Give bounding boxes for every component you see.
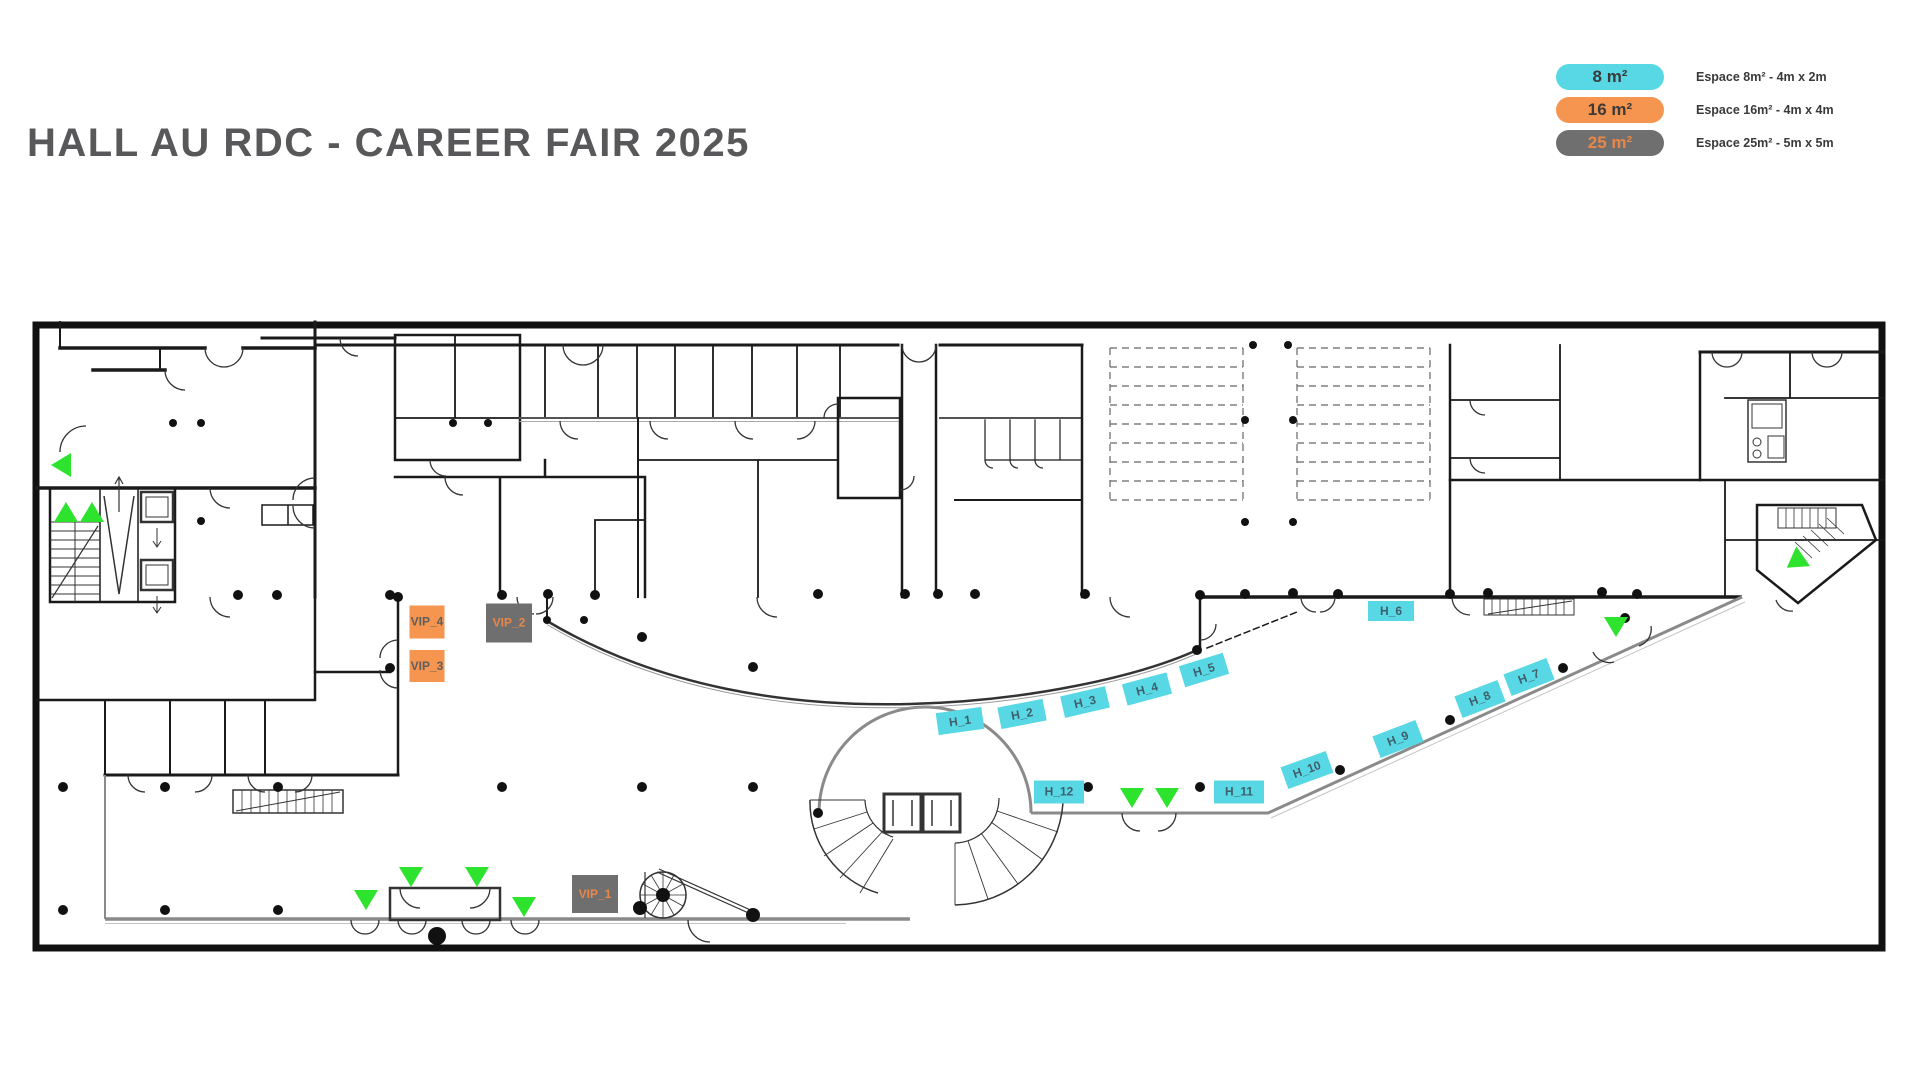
booth-vip_3[interactable]: VIP_3: [410, 650, 445, 682]
facade: [105, 597, 1745, 924]
booth-vip_4[interactable]: VIP_4: [410, 606, 445, 639]
atrium-features: [390, 794, 1063, 920]
kitchen-icon: [1748, 400, 1786, 462]
booth-h_11[interactable]: H_11: [1214, 781, 1264, 804]
booth-h_6[interactable]: H_6: [1368, 601, 1414, 621]
booth-h_12[interactable]: H_12: [1034, 781, 1084, 804]
booth-vip_1[interactable]: VIP_1: [572, 875, 618, 913]
booth-vip_2[interactable]: VIP_2: [486, 604, 532, 643]
interior-walls: [37, 322, 1884, 775]
columns: [58, 341, 1642, 945]
floorplan-page: HALL AU RDC - CAREER FAIR 2025 8 m²Espac…: [0, 0, 1920, 1080]
shelving-dashed: [1110, 348, 1430, 503]
doors: [60, 338, 1842, 942]
floorplan-drawing: [0, 0, 1920, 1080]
stairs-and-elevators: [50, 477, 1844, 813]
